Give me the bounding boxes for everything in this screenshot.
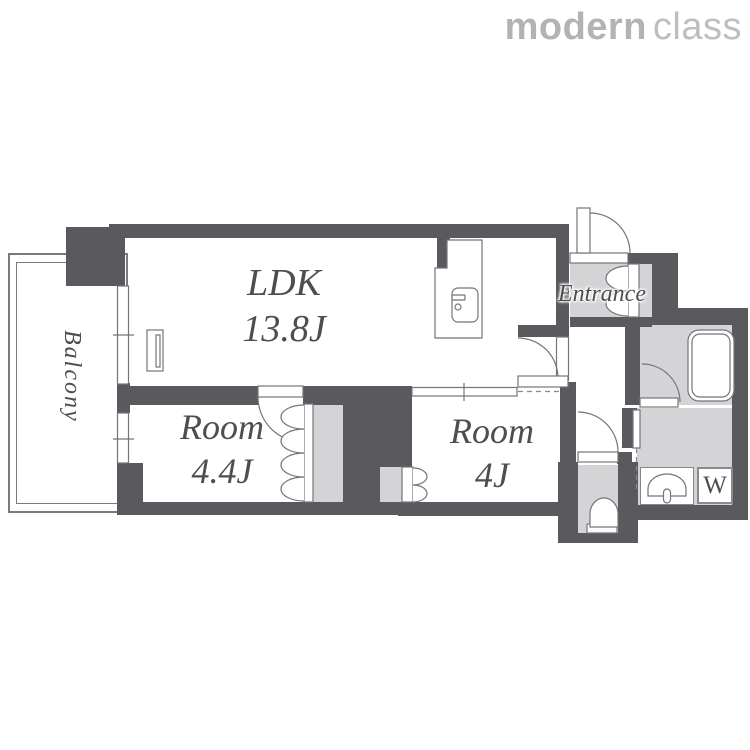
wall-segment: [625, 505, 748, 520]
room-a-label: Room 4.4J: [136, 406, 308, 494]
wall-segment: [625, 325, 640, 405]
closet-a-floor: [313, 402, 345, 502]
ldk-label: LDK 13.8J: [184, 260, 384, 353]
wall-segment: [343, 467, 380, 503]
wall-segment: [518, 325, 568, 337]
ldk-door: [518, 338, 568, 387]
room-b-area: 4J: [475, 455, 509, 495]
balcony-label: Balcony: [44, 330, 86, 460]
closet-b-floor: [380, 467, 402, 503]
kitchen-sink-icon: [452, 288, 478, 322]
ldk-area: 13.8J: [242, 308, 325, 350]
room-a-name: Room: [180, 407, 264, 447]
room-b-label: Room 4J: [414, 410, 570, 498]
wall-segment: [570, 317, 652, 327]
bathroom-floor: [638, 325, 734, 405]
entrance-threshold: [570, 253, 628, 263]
floor-plan: W: [0, 0, 750, 750]
entrance-door: [577, 208, 630, 253]
ldk-door-jamb: [557, 337, 569, 380]
washer-label: W: [703, 472, 727, 500]
wall-segment: [622, 408, 637, 448]
wall-segment: [117, 502, 412, 515]
wall-segment: [343, 400, 412, 467]
wall-segment: [109, 224, 569, 238]
toilet-floor: [578, 465, 618, 535]
wall-segment: [117, 386, 258, 405]
wall-segment: [558, 533, 638, 543]
entrance-label: Entrance: [546, 280, 658, 309]
room-a-area: 4.4J: [192, 451, 253, 491]
room-b-name: Room: [450, 411, 534, 451]
wall-segment: [732, 308, 748, 520]
ldk-cabinet: [147, 330, 163, 371]
wall-segment: [628, 253, 652, 264]
wall-segment: [398, 502, 576, 516]
toilet-door: [578, 412, 618, 462]
window-room-b: [412, 383, 517, 401]
wall-segment: [617, 452, 632, 464]
ldk-name: LDK: [247, 262, 321, 304]
washer-pan: W: [697, 467, 733, 504]
washbasin-box: [640, 467, 694, 505]
wall-segment: [437, 238, 450, 270]
wall-segment: [618, 462, 638, 543]
